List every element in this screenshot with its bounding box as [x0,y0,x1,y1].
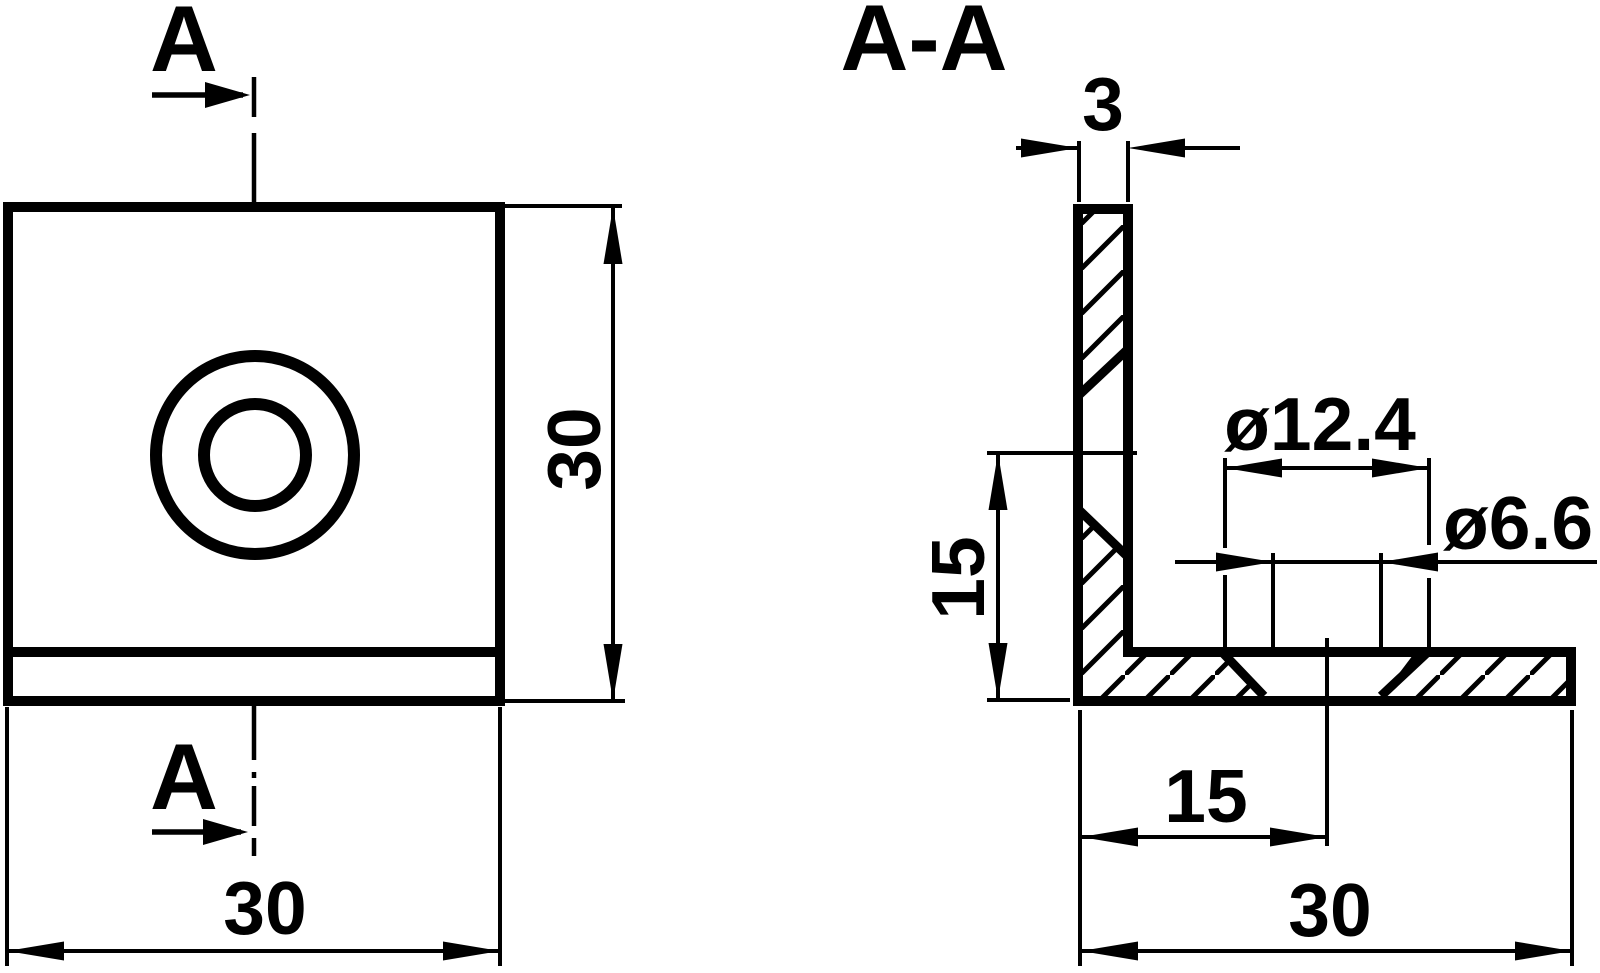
plate-outline [8,207,500,701]
section-view: A-A 3 [840,0,1597,966]
dim-hole: ø6.6 [1175,481,1597,647]
section-title: A-A [840,0,1007,90]
dim-hole-height-label: 15 [916,536,1000,619]
dim-counterbore-label: ø12.4 [1224,382,1416,466]
dim-width-label: 30 [223,866,306,950]
drawing-canvas: A A 30 30 A-A [0,0,1600,973]
front-view: A A 30 30 [7,0,625,966]
dim-hole-label: ø6.6 [1443,481,1593,565]
dim-thickness-label: 3 [1082,62,1124,146]
dim-thickness-3: 3 [1016,62,1240,202]
dim-hole-offset-label: 15 [1164,754,1247,838]
section-cut-bottom: A [150,724,248,845]
dim-leg-length-label: 30 [1288,868,1371,952]
technical-drawing: A A 30 30 A-A [0,0,1600,973]
dim-height-label: 30 [532,407,616,490]
section-label-bottom: A [150,724,218,829]
dim-height-30: 30 [503,206,625,701]
dim-counterbore: ø12.4 [1224,382,1429,647]
section-label-top: A [150,0,218,91]
section-cut-top: A [150,0,250,108]
